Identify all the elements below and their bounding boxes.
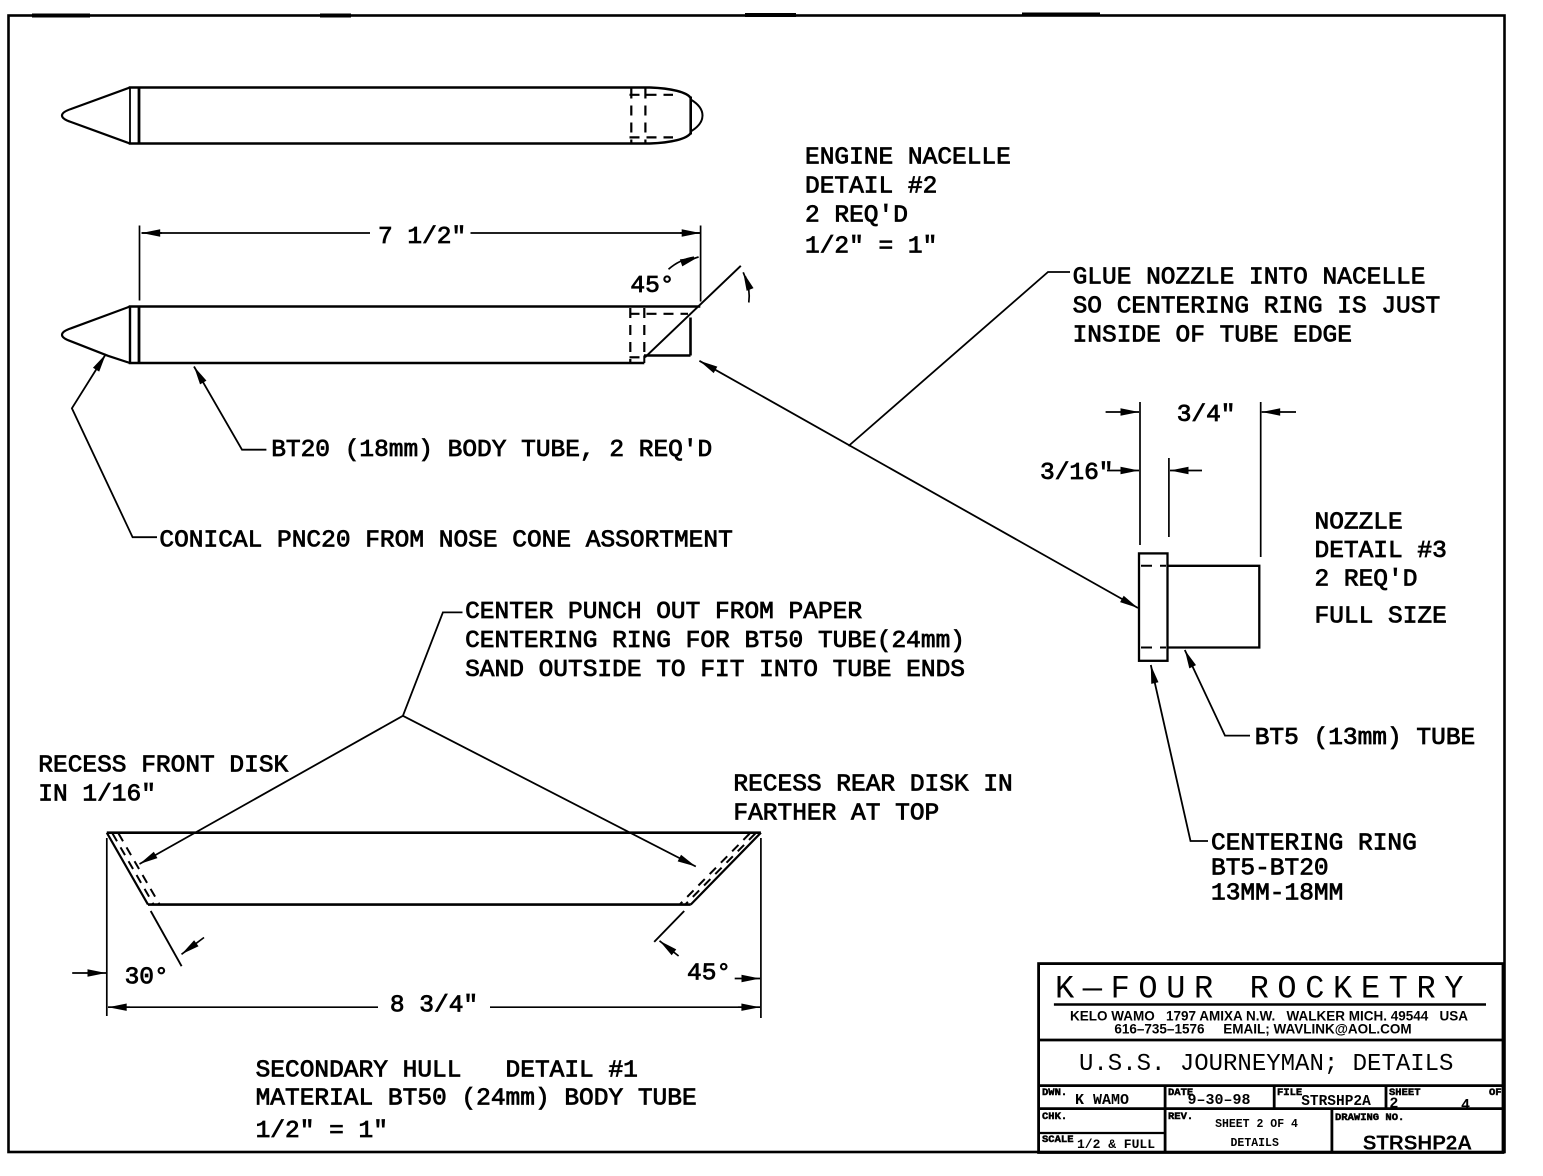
svg-text:8 3/4": 8 3/4" xyxy=(390,993,478,1020)
svg-text:7 1/2": 7 1/2" xyxy=(378,224,466,251)
svg-text:BT5-BT20: BT5-BT20 xyxy=(1211,856,1329,883)
svg-text:K—FOUR ROCKETRY: K—FOUR ROCKETRY xyxy=(1055,971,1472,1008)
svg-text:SO CENTERING RING IS JUST: SO CENTERING RING IS JUST xyxy=(1073,294,1441,321)
svg-text:1/2 & FULL: 1/2 & FULL xyxy=(1077,1137,1155,1152)
svg-text:1/2" = 1": 1/2" = 1" xyxy=(256,1118,388,1145)
svg-text:STRSHP2A: STRSHP2A xyxy=(1363,1132,1473,1155)
svg-text:ENGINE NACELLE: ENGINE NACELLE xyxy=(805,145,1011,172)
svg-text:13MM-18MM: 13MM-18MM xyxy=(1211,881,1343,908)
svg-text:RECESS FRONT DISK: RECESS FRONT DISK xyxy=(38,753,288,780)
svg-text:BT20 (18mm) BODY TUBE, 2 REQ'D: BT20 (18mm) BODY TUBE, 2 REQ'D xyxy=(271,437,712,464)
svg-text:GLUE NOZZLE INTO NACELLE: GLUE NOZZLE INTO NACELLE xyxy=(1073,265,1426,292)
svg-text:FARTHER AT TOP: FARTHER AT TOP xyxy=(733,801,939,828)
svg-text:STRSHP2A: STRSHP2A xyxy=(1301,1094,1371,1110)
svg-text:RECESS REAR DISK IN: RECESS REAR DISK IN xyxy=(733,772,1012,799)
svg-text:K WAMO: K WAMO xyxy=(1075,1092,1129,1109)
svg-text:SAND OUTSIDE TO FIT INTO TUBE: SAND OUTSIDE TO FIT INTO TUBE ENDS xyxy=(465,657,965,684)
svg-text:45°: 45° xyxy=(630,273,674,300)
svg-text:DWN.: DWN. xyxy=(1042,1087,1067,1099)
svg-text:FULL SIZE: FULL SIZE xyxy=(1315,604,1447,631)
svg-text:2 REQ'D: 2 REQ'D xyxy=(805,203,908,230)
svg-text:INSIDE OF TUBE EDGE: INSIDE OF TUBE EDGE xyxy=(1073,323,1352,350)
svg-text:3/4": 3/4" xyxy=(1177,402,1236,429)
svg-text:CENTER PUNCH OUT FROM PAPER: CENTER PUNCH OUT FROM PAPER xyxy=(465,599,862,626)
svg-text:DRAWING NO.: DRAWING NO. xyxy=(1335,1112,1404,1124)
svg-text:9–30–98: 9–30–98 xyxy=(1187,1092,1250,1109)
svg-text:MATERIAL BT50 (24mm) BODY TUBE: MATERIAL BT50 (24mm) BODY TUBE xyxy=(256,1086,697,1113)
svg-text:FILE: FILE xyxy=(1277,1087,1302,1099)
svg-text:CENTERING RING: CENTERING RING xyxy=(1211,831,1417,858)
svg-text:2 REQ'D: 2 REQ'D xyxy=(1315,567,1418,594)
svg-text:DETAIL #2: DETAIL #2 xyxy=(805,174,937,201)
svg-text:3/16": 3/16" xyxy=(1040,460,1114,487)
svg-text:2: 2 xyxy=(1389,1096,1398,1113)
svg-text:SCALE: SCALE xyxy=(1042,1134,1074,1146)
svg-text:4: 4 xyxy=(1461,1097,1470,1114)
svg-text:CENTERING RING FOR BT50 TUBE(2: CENTERING RING FOR BT50 TUBE(24mm) xyxy=(465,628,965,655)
svg-text:1/2" = 1": 1/2" = 1" xyxy=(805,234,937,261)
svg-text:SHEET 2 OF 4: SHEET 2 OF 4 xyxy=(1215,1118,1298,1131)
svg-text:OF: OF xyxy=(1489,1087,1502,1099)
svg-text:SECONDARY HULL DETAIL #1: SECONDARY HULL DETAIL #1 xyxy=(256,1058,638,1085)
svg-text:U.S.S. JOURNEYMAN; DETAILS: U.S.S. JOURNEYMAN; DETAILS xyxy=(1079,1051,1453,1078)
svg-text:45°: 45° xyxy=(687,961,731,988)
svg-text:REV.: REV. xyxy=(1168,1111,1193,1123)
svg-text:DETAIL #3: DETAIL #3 xyxy=(1315,538,1447,565)
svg-text:BT5 (13mm) TUBE: BT5 (13mm) TUBE xyxy=(1255,725,1476,752)
svg-text:30°: 30° xyxy=(125,965,169,992)
svg-text:DETAILS: DETAILS xyxy=(1231,1137,1279,1150)
svg-text:NOZZLE: NOZZLE xyxy=(1315,510,1403,537)
svg-text:CONICAL PNC20 FROM NOSE CONE A: CONICAL PNC20 FROM NOSE CONE ASSORTMENT xyxy=(159,528,732,555)
svg-text:CHK.: CHK. xyxy=(1042,1111,1067,1123)
svg-text:IN 1/16": IN 1/16" xyxy=(38,782,156,809)
svg-text:616–735–1576 EMAIL; WAVLIN: 616–735–1576 EMAIL; WAVLINK@AOL.COM xyxy=(1114,1022,1411,1037)
